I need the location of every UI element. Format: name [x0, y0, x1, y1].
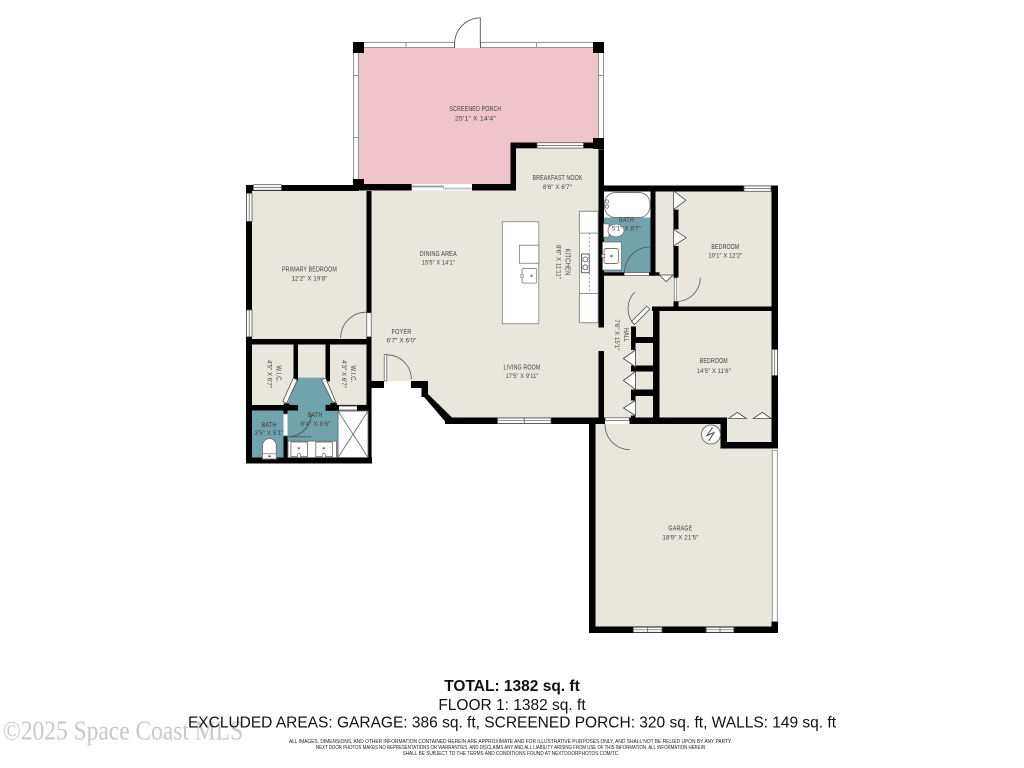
svg-text:SCREENED PORCH: SCREENED PORCH: [449, 106, 501, 113]
svg-text:BEDROOM: BEDROOM: [700, 358, 728, 365]
svg-text:FLOOR 1: 1382 sq. ft: FLOOR 1: 1382 sq. ft: [438, 697, 586, 714]
svg-text:15′5″ X 14′1″: 15′5″ X 14′1″: [422, 260, 455, 267]
svg-text:HALL: HALL: [622, 328, 629, 342]
svg-text:SHALL BE SUBJECT TO THE TERMS: SHALL BE SUBJECT TO THE TERMS AND CONDIT…: [403, 751, 620, 757]
svg-text:14′5″ X 11′6″: 14′5″ X 11′6″: [697, 368, 731, 375]
svg-text:25′1″ X 14′4″: 25′1″ X 14′4″: [455, 116, 497, 123]
svg-text:DINING AREA: DINING AREA: [420, 251, 457, 258]
svg-text:BATH: BATH: [619, 217, 634, 224]
svg-text:GARAGE: GARAGE: [668, 526, 692, 533]
svg-text:W.I.C.: W.I.C.: [349, 366, 356, 383]
svg-text:LIVING ROOM: LIVING ROOM: [504, 365, 541, 372]
svg-text:12′2″ X 19′8″: 12′2″ X 19′8″: [292, 275, 329, 282]
svg-text:6′7″ X 6′0″: 6′7″ X 6′0″: [387, 338, 418, 345]
svg-text:8′4″ X 8′6″: 8′4″ X 8′6″: [301, 421, 332, 428]
svg-text:BREAKFAST NOOK: BREAKFAST NOOK: [533, 175, 583, 182]
svg-text:4′5″ X 6′7″: 4′5″ X 6′7″: [266, 360, 273, 388]
svg-text:W.I.C.: W.I.C.: [275, 366, 282, 383]
svg-text:17′5″ X 9′11″: 17′5″ X 9′11″: [506, 373, 539, 380]
svg-text:EXCLUDED AREAS: GARAGE: 386 sq: EXCLUDED AREAS: GARAGE: 386 sq. ft, SCRE…: [188, 715, 837, 732]
svg-text:8′6″ X 6′7″: 8′6″ X 6′7″: [543, 184, 573, 191]
svg-text:ALL IMAGES, DIMENSIONS, AND OT: ALL IMAGES, DIMENSIONS, AND OTHER INFORM…: [289, 739, 732, 745]
svg-text:TOTAL: 1382 sq. ft: TOTAL: 1382 sq. ft: [444, 678, 580, 695]
svg-text:10′1″ X 12′2″: 10′1″ X 12′2″: [708, 253, 742, 260]
svg-text:3′5″ X 5′1″: 3′5″ X 5′1″: [255, 430, 285, 437]
svg-text:4′3″ X 6′7″: 4′3″ X 6′7″: [340, 360, 347, 388]
svg-text:NEXT DOOR PHOTOS MAKES NO REPR: NEXT DOOR PHOTOS MAKES NO REPRESENTATION…: [316, 745, 705, 751]
svg-text:7′6″ X 15′1″: 7′6″ X 15′1″: [613, 320, 620, 351]
svg-text:BEDROOM: BEDROOM: [711, 244, 739, 251]
svg-text:18′9″ X 21′5″: 18′9″ X 21′5″: [662, 535, 699, 542]
svg-text:BATH: BATH: [308, 412, 323, 419]
svg-text:FOYER: FOYER: [392, 329, 412, 336]
svg-text:5′1″ X 8′7″: 5′1″ X 8′7″: [612, 226, 642, 233]
svg-text:8′6″ X 11′11″: 8′6″ X 11′11″: [555, 245, 562, 280]
svg-text:PRIMARY BEDROOM: PRIMARY BEDROOM: [282, 266, 337, 273]
svg-text:KITCHEN: KITCHEN: [564, 249, 571, 276]
svg-text:BATH: BATH: [262, 422, 277, 429]
